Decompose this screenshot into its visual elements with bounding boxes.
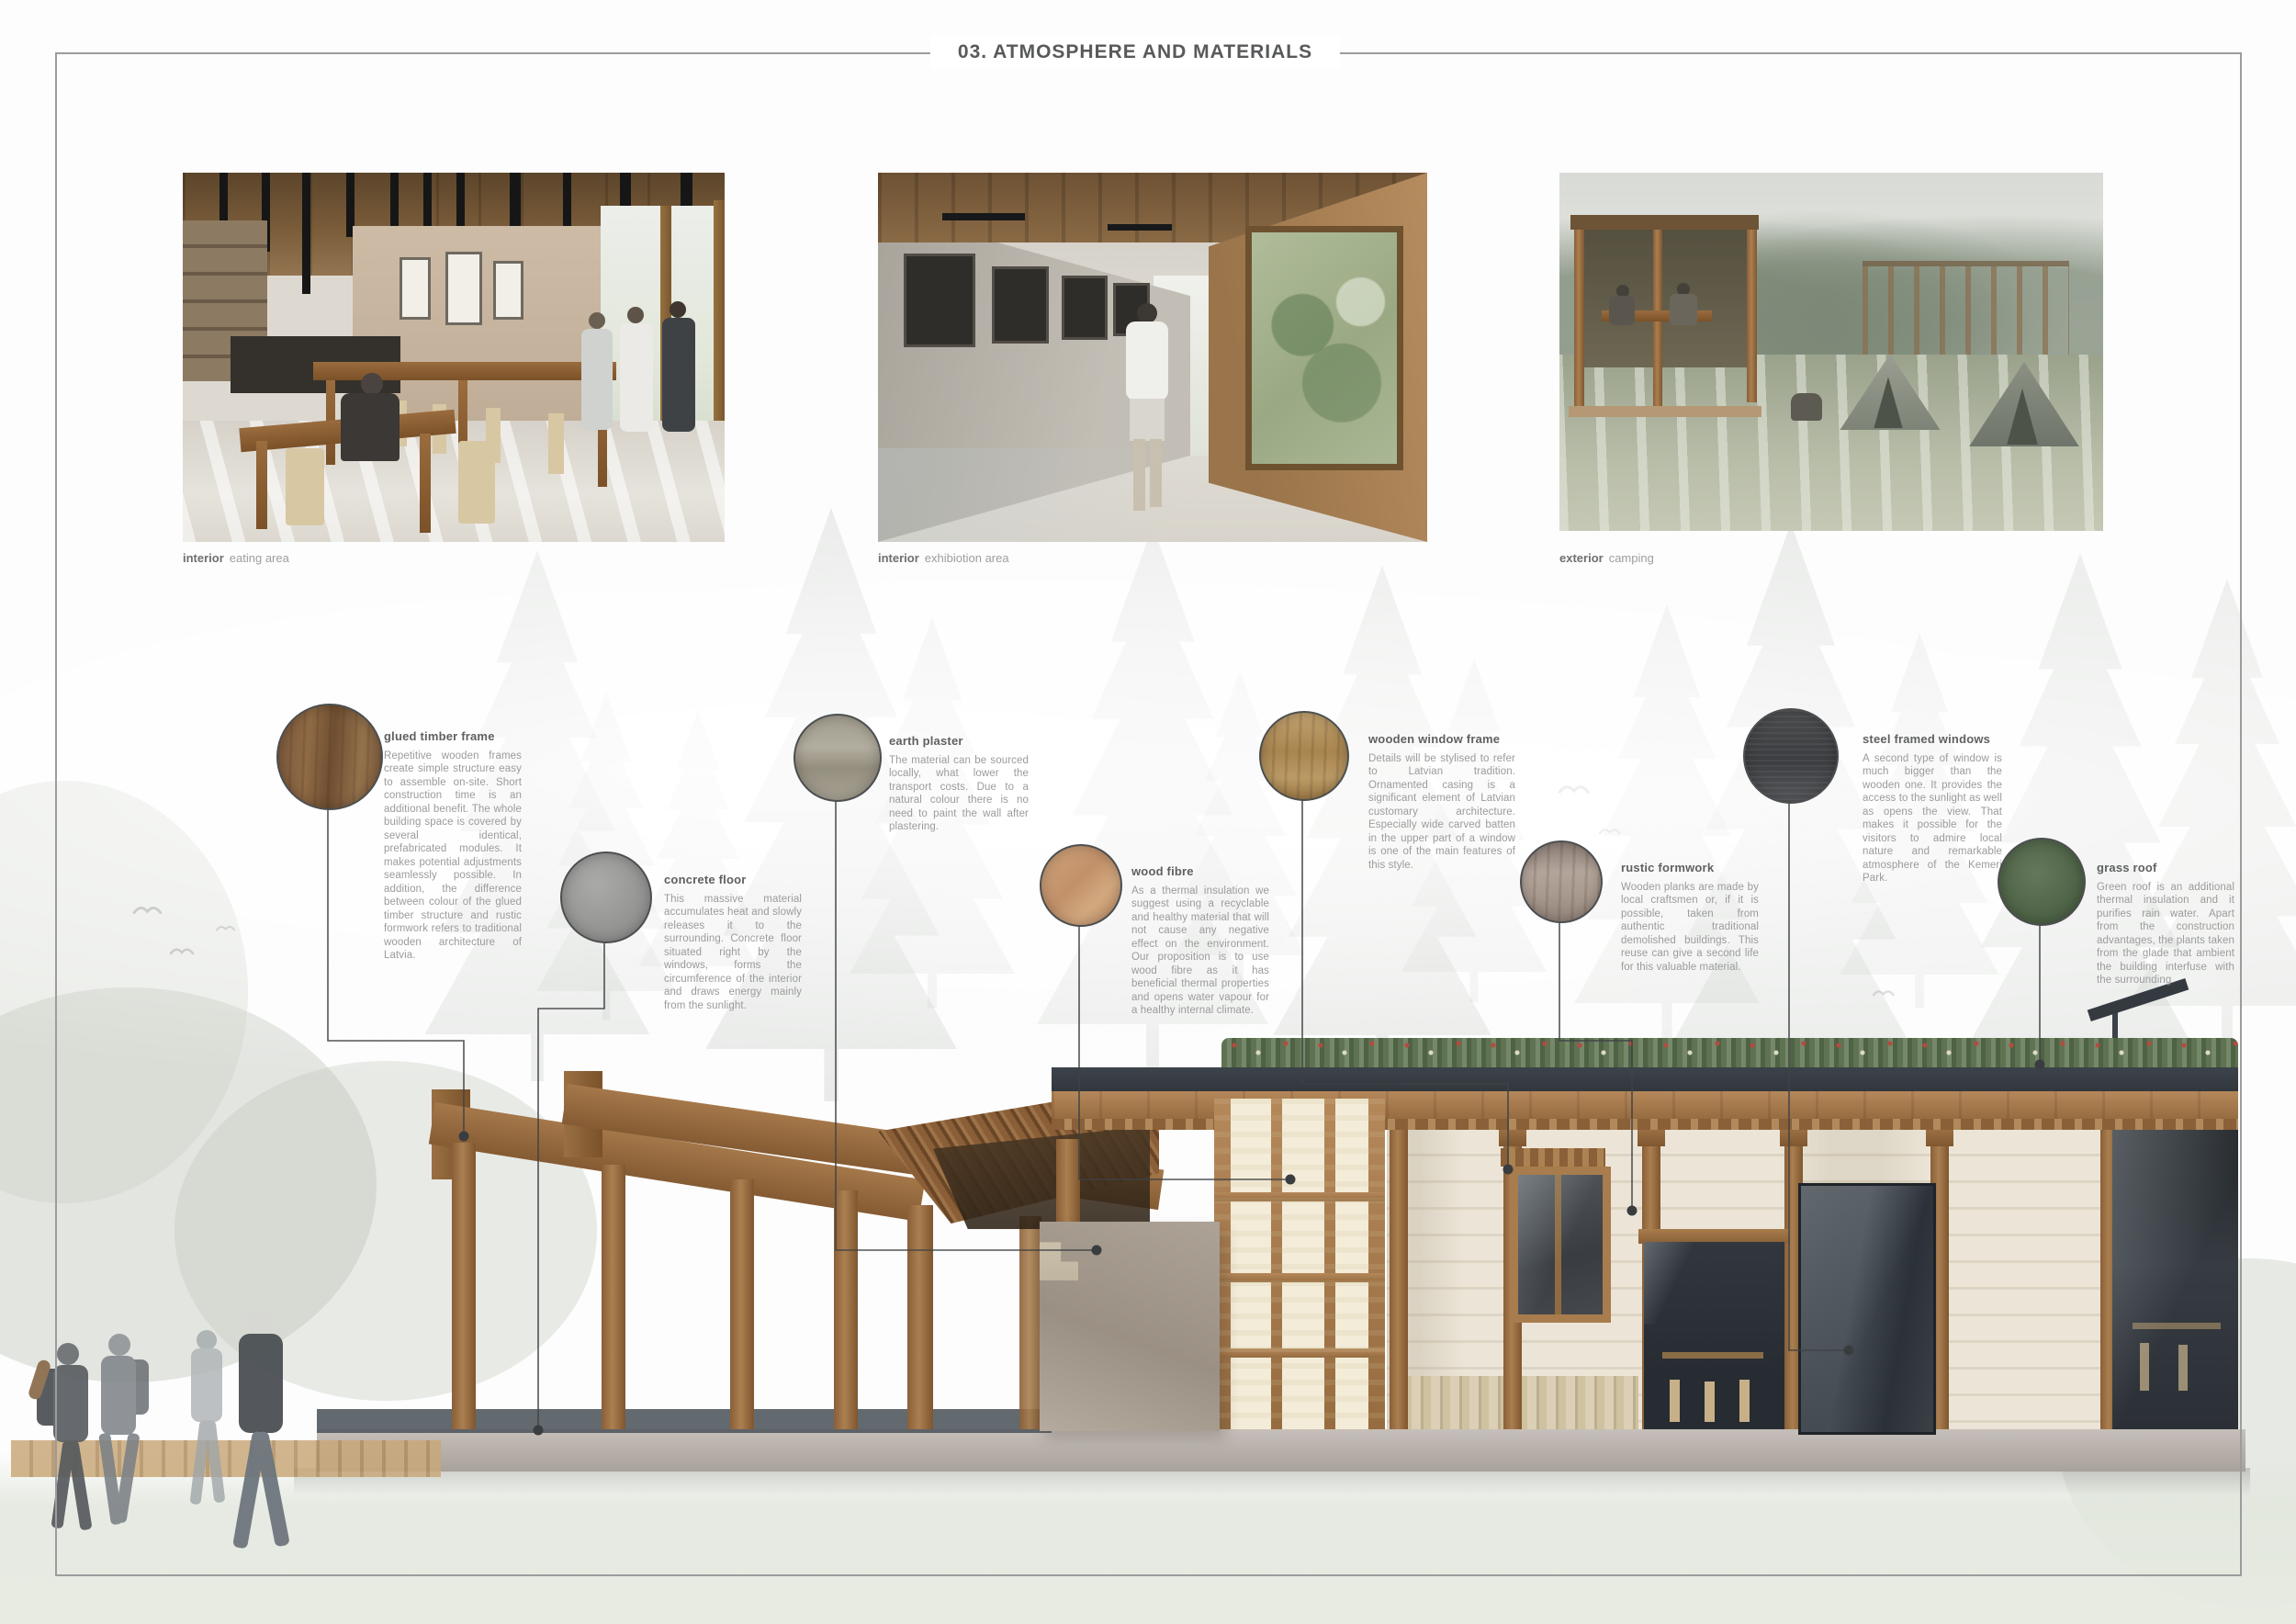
material-description: This massive material accumulates heat a… [664,893,802,1012]
post-corbel [1499,1130,1526,1146]
material-name: wooden window frame [1368,732,1515,746]
wood-fibre-infill-panel [1214,1099,1385,1429]
material-callout-concrete-floor: concrete floor This massive material acc… [664,873,802,1012]
man-leg [253,1431,290,1548]
standing-person-head [670,301,686,318]
material-swatch-grass-roof [1998,838,2086,926]
visitor-shorts [1130,399,1165,441]
man-head [248,1310,274,1336]
linear-light [942,213,1025,220]
shoji-mullion [1324,1099,1335,1429]
glass-glare [2112,1130,2238,1429]
visitor-torso [1126,321,1168,400]
photo-interior-eating-area [183,173,725,542]
plaster-step-block [1040,1222,1078,1280]
shoji-rail [1214,1192,1385,1201]
table-leg [256,441,267,529]
material-description: A second type of window is much bigger t… [1863,752,2002,885]
building-shadow [294,1468,2250,1495]
chair [458,441,495,524]
shelter-interior [1583,230,1747,367]
shoji-post [1368,1099,1385,1429]
photo-exterior-camping [1559,173,2103,531]
hiker [88,1334,152,1532]
timber-post [730,1179,754,1429]
chair [286,448,324,525]
post-corbel [1780,1130,1807,1146]
material-callout-grass-roof: grass roof Green roof is an additional t… [2097,861,2234,987]
far-building [1863,261,2069,355]
timber-post [452,1143,476,1429]
shoji-mullion [1271,1099,1282,1429]
kneeling-person [1791,393,1822,421]
camper-body [1670,294,1697,325]
table-leg [420,434,431,533]
right-glazed-section [2112,1130,2238,1429]
wall-art [400,257,431,320]
material-name: rustic formwork [1621,861,1759,874]
standing-person-head [589,312,605,329]
material-swatch-steel-framed-windows [1743,708,1839,804]
material-swatch-wood-fibre [1040,844,1122,927]
wall-art [493,261,523,320]
glazed-opening-bar-view [1644,1242,1784,1429]
material-name: grass roof [2097,861,2234,874]
shelter-post [1747,230,1757,402]
material-callout-glued-timber-frame: glued timber frame Repetitive wooden fra… [384,729,522,963]
material-description: Details will be stylised to refer to Lat… [1368,752,1515,872]
glass-glare [1644,1242,1699,1325]
caption-bold: interior [878,551,919,565]
timber-post [834,1190,858,1429]
exhibition-frame [1062,276,1108,340]
shelter-post [1574,230,1584,410]
material-description: As a thermal insulation we suggest using… [1131,885,1269,1018]
shelter-roof [1570,215,1759,230]
material-description: Wooden planks are made by local craftsme… [1621,881,1759,974]
carved-window-batten [1501,1148,1605,1167]
material-name: glued timber frame [384,729,522,743]
caption-bold: exterior [1559,551,1604,565]
concrete-floor-slab [317,1429,2245,1472]
standing-person-body [662,318,695,432]
dark-deck [317,1409,1052,1433]
photo-caption: interiorexhibiotion area [878,551,1009,565]
timber-post [907,1205,933,1429]
seated-person-body [341,393,400,461]
hiker-head [108,1334,130,1356]
material-swatch-glued-timber-frame [276,704,383,810]
floor-reflection [878,448,1427,542]
shoji-rail [1214,1348,1385,1358]
walking-man [220,1310,298,1554]
grass-roof-fringe [1221,1038,2238,1071]
photo-interior-exhibition-area [878,173,1427,542]
material-callout-wood-fibre: wood fibre As a thermal insulation we su… [1131,864,1269,1018]
hiker-head [57,1343,79,1365]
caption-rest: eating area [230,551,289,565]
standing-person-body [581,329,613,430]
post-corbel [1638,1130,1665,1146]
linear-light [1108,224,1172,231]
material-description: Repetitive wooden frames create simple s… [384,750,522,963]
hiker-leg [114,1433,140,1524]
material-callout-rustic-formwork: rustic formwork Wooden planks are made b… [1621,861,1759,974]
walker-torso [191,1348,222,1422]
photo-caption: interioreating area [183,551,289,565]
material-callout-steel-framed-windows: steel framed windows A second type of wi… [1863,732,2002,885]
caption-rest: camping [1609,551,1654,565]
earth-plaster-panel [1040,1222,1220,1431]
park-map-panel [1245,226,1403,470]
bar-stool [548,413,564,474]
man-jacket [239,1334,283,1433]
material-description: The material can be sourced locally, wha… [889,754,1029,834]
caption-bold: interior [183,551,224,565]
interior-stool [1739,1380,1750,1422]
material-description: Green roof is an additional thermal insu… [2097,881,2234,987]
interior-stool [1705,1382,1715,1422]
material-name: concrete floor [664,873,802,886]
hiker-torso [53,1365,88,1442]
material-swatch-earth-plaster [793,714,882,802]
standing-person-body [620,323,653,432]
visitor-head [1137,303,1157,323]
caption-rest: exhibiotion area [925,551,1009,565]
pendant-light [302,173,310,294]
high-table [313,362,616,380]
interior-bar-top [1662,1352,1763,1359]
steel-framed-window [1798,1183,1936,1435]
material-name: earth plaster [889,734,1029,748]
seated-person-head [361,373,383,395]
material-name: steel framed windows [1863,732,2002,746]
ornamented-wooden-window [1510,1167,1611,1323]
standing-person-head [627,307,644,323]
material-name: wood fibre [1131,864,1269,878]
hiker-torso [101,1356,136,1435]
material-swatch-wooden-window-frame [1259,711,1349,801]
pendant-light [510,173,521,231]
material-swatch-rustic-formwork [1520,840,1603,923]
wall-art [445,252,482,325]
glass-glare [1801,1186,1933,1432]
material-callout-wooden-window-frame: wooden window frame Details will be styl… [1368,732,1515,872]
interior-stool [1670,1380,1680,1422]
presentation-board: { "title": "03. ATMOSPHERE AND MATERIALS… [0,0,2296,1624]
walker-head [197,1330,217,1350]
camper-body [1609,296,1635,325]
exhibition-frame [992,266,1049,344]
material-swatch-concrete-floor [560,851,652,943]
timber-post [1019,1216,1041,1429]
wall-post [1390,1130,1408,1429]
charcoal-roof-fascia [1052,1067,2238,1091]
shoji-rail [1214,1273,1385,1282]
timber-post [602,1165,625,1429]
page-title: 03. ATMOSPHERE AND MATERIALS [930,36,1340,69]
photo-caption: exteriorcamping [1559,551,1654,565]
exhibition-frame [904,254,975,347]
window-glare [1518,1175,1603,1314]
material-callout-earth-plaster: earth plaster The material can be source… [889,734,1029,834]
shelter-deck [1569,406,1761,417]
post-corbel [1926,1130,1953,1146]
